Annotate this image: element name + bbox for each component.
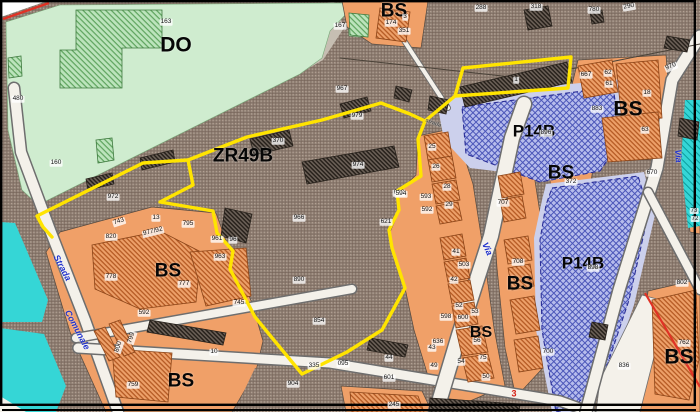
map-canvas[interactable]: DOZR49BBSBSBSBSBSBSBSBSP14BP14B163167174…: [0, 0, 700, 412]
zoning-map: [0, 0, 700, 412]
